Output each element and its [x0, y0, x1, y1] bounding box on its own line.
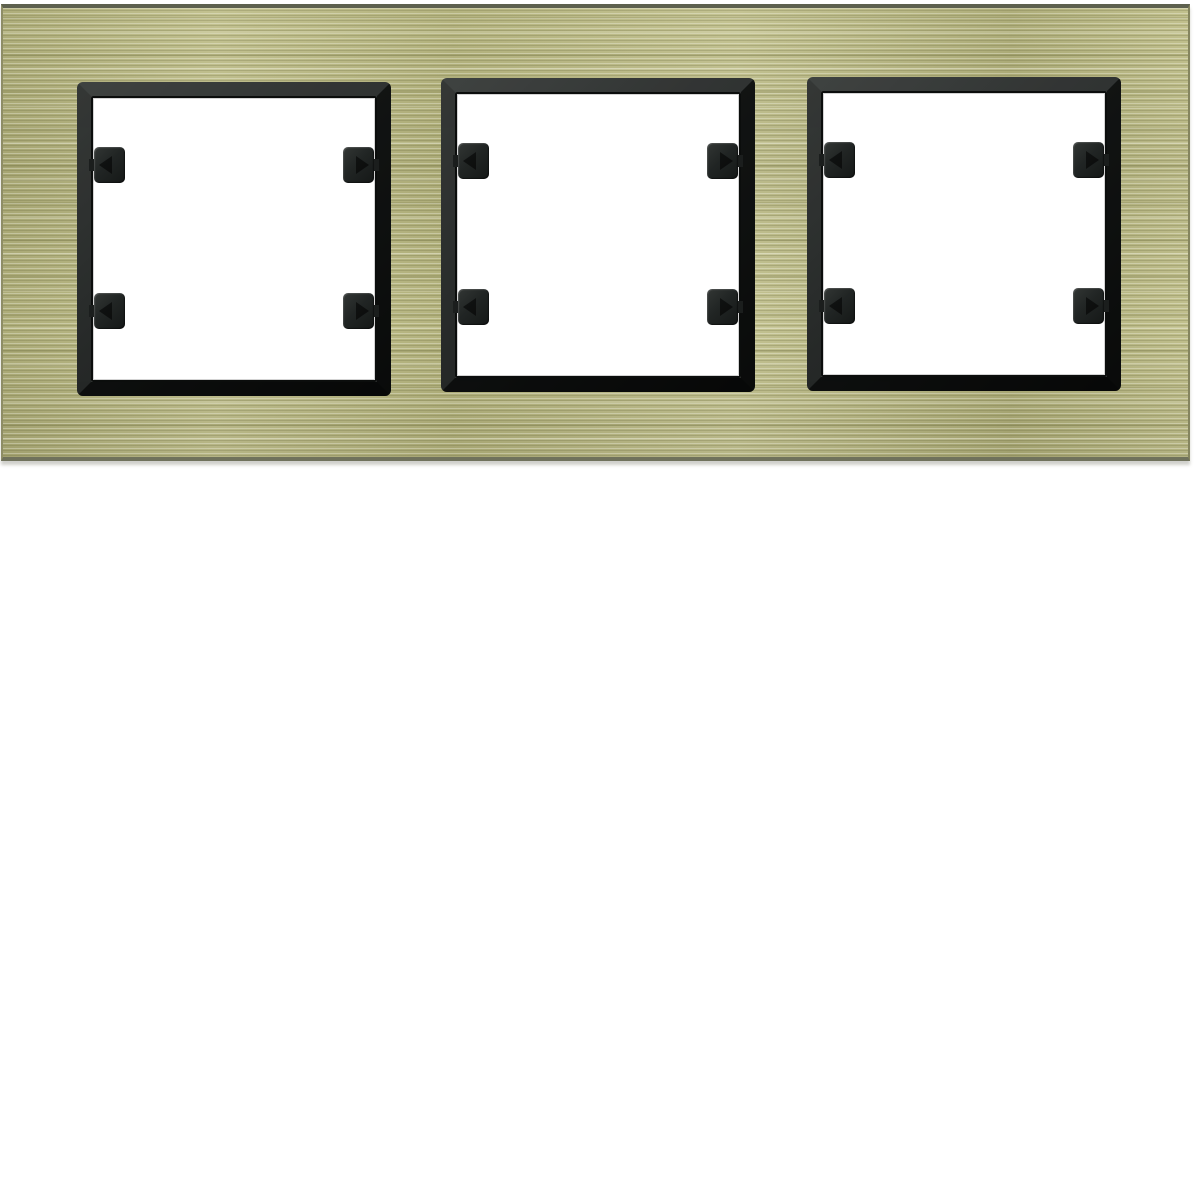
mounting-clip — [707, 289, 738, 325]
switch-frame-plate — [1, 4, 1190, 461]
frame-window-left — [77, 82, 391, 396]
mounting-clip — [824, 288, 855, 324]
mounting-clip — [94, 147, 125, 183]
window-opening — [455, 92, 741, 378]
window-opening — [91, 96, 377, 382]
mounting-clip — [343, 293, 374, 329]
mounting-clip — [824, 142, 855, 178]
mounting-clip — [343, 147, 374, 183]
mounting-clip — [458, 143, 489, 179]
frame-window-center — [441, 78, 755, 392]
mounting-clip — [1073, 288, 1104, 324]
product-photo — [0, 0, 1200, 1200]
mounting-clip — [458, 289, 489, 325]
mounting-clip — [1073, 142, 1104, 178]
frame-window-right — [807, 77, 1121, 391]
mounting-clip — [707, 143, 738, 179]
mounting-clip — [94, 293, 125, 329]
window-opening — [821, 91, 1107, 377]
